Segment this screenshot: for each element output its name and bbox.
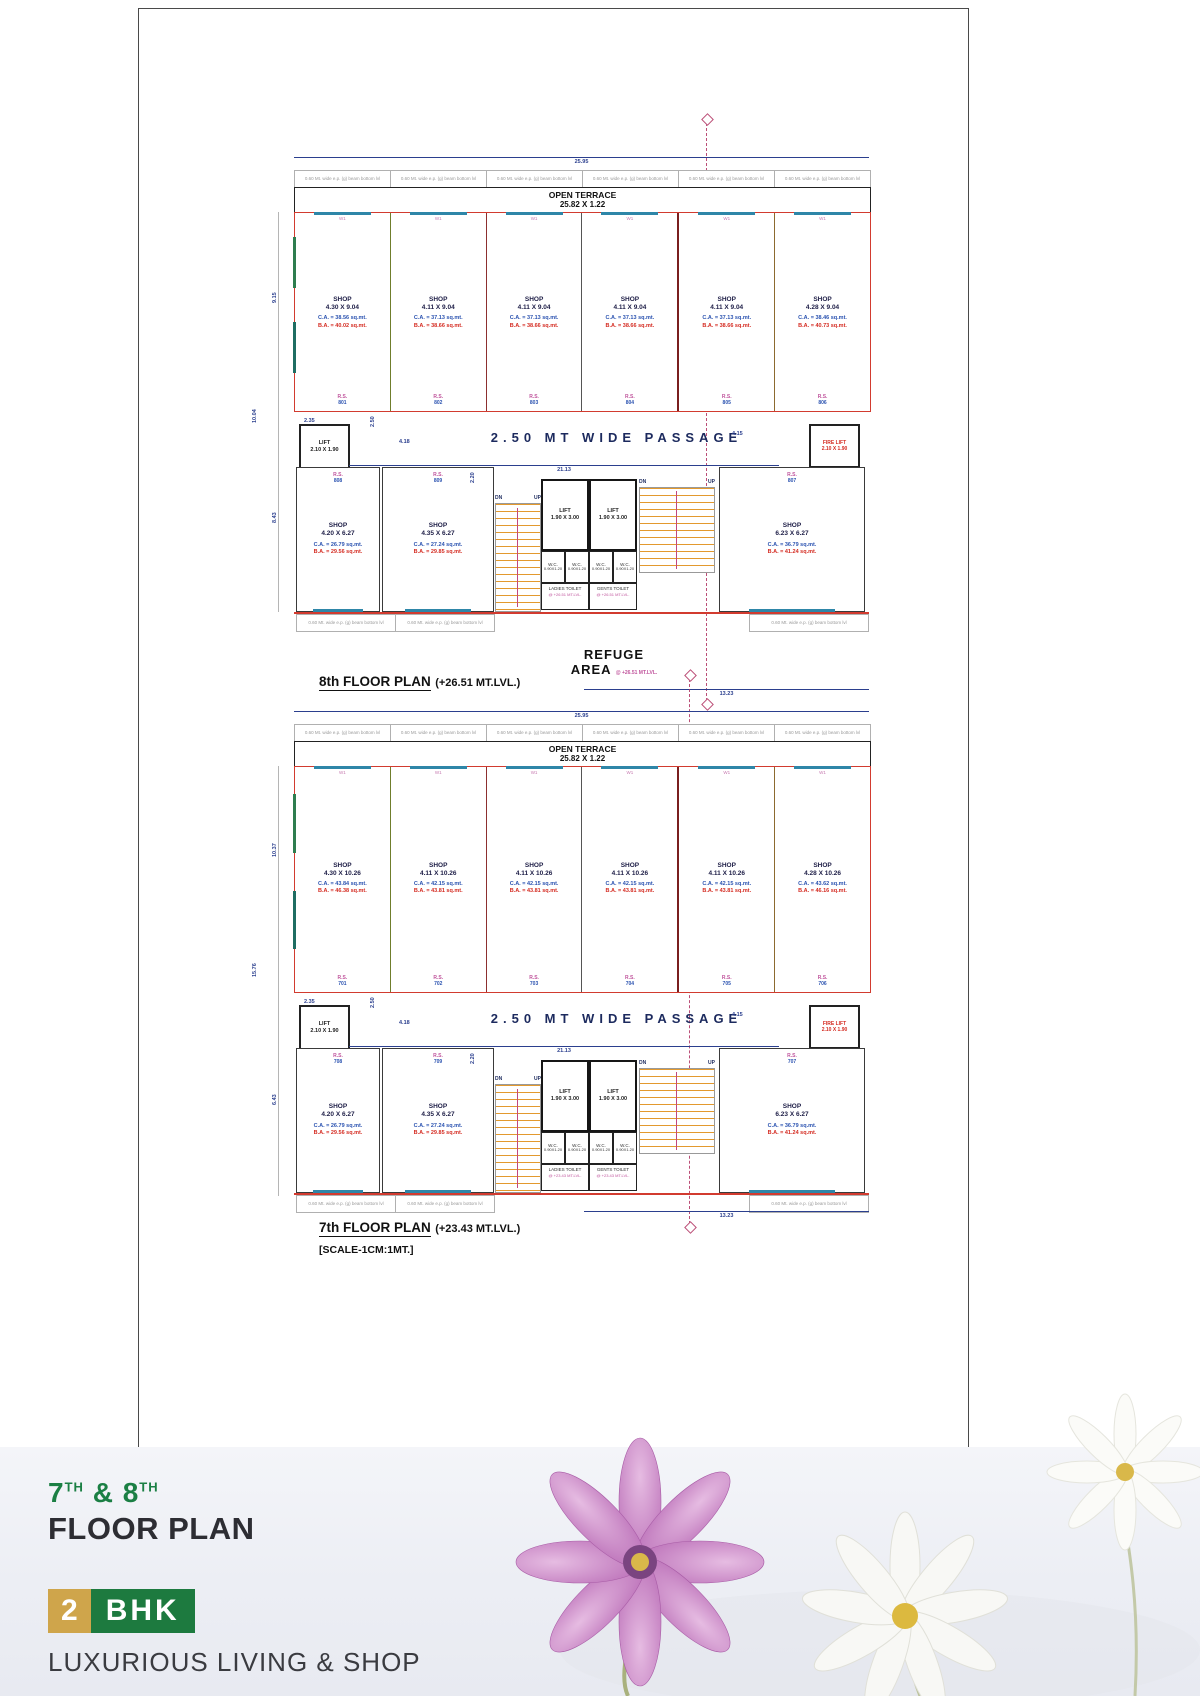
window-strip bbox=[698, 212, 755, 215]
beam-note: 0.60 Mt. wide e.p. (g) beam bottom lvl bbox=[396, 1196, 494, 1212]
shop-unit: W1 SHOP 4.11 X 10.26 C.A. = 42.15 sq.mt.… bbox=[390, 767, 486, 992]
dimension-label: 6.43 bbox=[272, 1094, 278, 1105]
shop-number: R.S. 701 bbox=[295, 975, 390, 987]
passage-label: 2.50 MT WIDE PASSAGE bbox=[491, 430, 742, 445]
drawing-sheet: 25.95 0.60 Mt. wide e.p. (g) beam bottom… bbox=[138, 8, 969, 1449]
lift: LIFT 1.90 X 3.00 bbox=[589, 1060, 637, 1132]
ampersand: & bbox=[93, 1477, 114, 1508]
fire-lift: FIRE LIFT 2.10 X 1.90 bbox=[809, 424, 860, 468]
shop-text: SHOP 4.11 X 10.26 C.A. = 42.15 sq.mt. B.… bbox=[487, 862, 582, 896]
footer-titles: 7TH & 8TH FLOOR PLAN 2 BHK LUXURIOUS LIV… bbox=[48, 1477, 421, 1678]
staircase: DN UP bbox=[639, 487, 715, 573]
builtup-area: B.A. = 29.85 sq.mt. bbox=[383, 549, 493, 556]
carpet-area: C.A. = 36.79 sq.mt. bbox=[720, 1123, 864, 1130]
wc-cell: W.C.0.90X1.20 bbox=[565, 551, 589, 583]
shop-text: SHOP 6.23 X 6.27 C.A. = 36.79 sq.mt. B.A… bbox=[720, 1103, 864, 1137]
window-strip bbox=[698, 766, 755, 769]
bhk-label: BHK bbox=[91, 1589, 195, 1633]
wc-cell: W.C.0.90X1.20 bbox=[613, 1132, 637, 1164]
open-terrace: OPEN TERRACE 25.82 X 1.22 bbox=[294, 741, 871, 768]
shop-text: SHOP 4.20 X 6.27 C.A. = 26.79 sq.mt. B.A… bbox=[297, 522, 379, 556]
wc-cell: W.C.0.90X1.20 bbox=[565, 1132, 589, 1164]
bhk-count: 2 bbox=[48, 1589, 91, 1633]
builtup-area: B.A. = 43.81 sq.mt. bbox=[391, 888, 486, 895]
dimension-label: 9.15 bbox=[272, 292, 278, 303]
shop-label: SHOP bbox=[297, 522, 379, 530]
shop-label: SHOP bbox=[383, 1103, 493, 1111]
shop-text: SHOP 4.11 X 10.26 C.A. = 42.15 sq.mt. B.… bbox=[679, 862, 774, 896]
shop-dimension: 6.23 X 6.27 bbox=[720, 1111, 864, 1119]
terrace-label: OPEN TERRACE bbox=[295, 744, 870, 754]
window-strip bbox=[313, 1190, 362, 1193]
window-strip bbox=[506, 766, 563, 769]
shop-text: SHOP 4.11 X 9.04 C.A. = 37.13 sq.mt. B.A… bbox=[487, 296, 582, 330]
dimension-label: 13.23 bbox=[717, 1213, 737, 1219]
shop-number: R.S. 702 bbox=[391, 975, 486, 987]
carpet-area: C.A. = 42.15 sq.mt. bbox=[487, 881, 582, 888]
dimension-label: 2.35 bbox=[304, 418, 315, 424]
bhk-badge: 2 BHK bbox=[48, 1589, 195, 1633]
shop-label: SHOP bbox=[295, 296, 390, 304]
shop-number: R.S. 705 bbox=[679, 975, 774, 987]
dimension-label: 21.13 bbox=[554, 1048, 574, 1054]
dimension-label: 25.95 bbox=[572, 159, 592, 165]
shop-unit: R.S. 807 SHOP 6.23 X 6.27 C.A. = 36.79 s… bbox=[719, 467, 865, 612]
window-tag: W1 bbox=[775, 770, 870, 775]
window-strip bbox=[749, 1190, 835, 1193]
ladies-toilet: LADIES TOILET @ +23.43 MT.LVL. bbox=[541, 1164, 589, 1191]
passage-band: 2.50 MT WIDE PASSAGE bbox=[294, 993, 869, 1043]
floor-7-suffix: TH bbox=[65, 1480, 84, 1495]
builtup-area: B.A. = 41.24 sq.mt. bbox=[720, 549, 864, 556]
shop-text: SHOP 4.28 X 9.04 C.A. = 38.46 sq.mt. B.A… bbox=[775, 296, 870, 330]
window-tag: W1 bbox=[775, 216, 870, 221]
lift: LIFT 2.10 X 1.90 bbox=[299, 1005, 350, 1051]
wc-dimension: 0.90X1.20 bbox=[614, 567, 636, 572]
toilet-label: LADIES TOILET bbox=[542, 1167, 588, 1173]
shop-number: R.S. 805 bbox=[679, 394, 774, 406]
beam-note: 0.60 Mt. wide e.p. (g) beam bottom lvl bbox=[487, 171, 583, 188]
lift: LIFT 1.90 X 3.00 bbox=[589, 479, 637, 551]
wc-dimension: 0.90X1.20 bbox=[542, 567, 564, 572]
window-strip bbox=[506, 212, 563, 215]
shop-dimension: 4.11 X 9.04 bbox=[582, 304, 677, 312]
brochure-page: 25.95 0.60 Mt. wide e.p. (g) beam bottom… bbox=[0, 0, 1200, 1696]
beam-note: 0.60 Mt. wide e.p. (g) beam bottom lvl bbox=[775, 725, 870, 742]
rs-number: 808 bbox=[297, 478, 379, 484]
shop-number: R.S. 808 bbox=[297, 472, 379, 484]
shop-text: SHOP 4.11 X 9.04 C.A. = 37.13 sq.mt. B.A… bbox=[391, 296, 486, 330]
carpet-area: C.A. = 38.46 sq.mt. bbox=[775, 315, 870, 322]
wc-cell: W.C.0.90X1.20 bbox=[589, 551, 613, 583]
lift-label: LIFT bbox=[543, 1089, 587, 1096]
ladies-toilet: LADIES TOILET @ +26.51 MT.LVL. bbox=[541, 583, 589, 610]
rs-number: 809 bbox=[383, 478, 493, 484]
shop-number: R.S. 801 bbox=[295, 394, 390, 406]
rs-number: 701 bbox=[295, 981, 390, 987]
toilet-level: @ +23.43 MT.LVL. bbox=[542, 1173, 588, 1178]
lift-dimension: 1.90 X 3.00 bbox=[591, 515, 635, 522]
window-tag: W1 bbox=[679, 216, 774, 221]
dimension-label: 4.18 bbox=[399, 1020, 410, 1026]
terrace-dimension: 25.82 X 1.22 bbox=[295, 200, 870, 209]
shop-unit: R.S. 708 SHOP 4.20 X 6.27 C.A. = 26.79 s… bbox=[296, 1048, 380, 1193]
lift-label: LIFT bbox=[301, 1021, 348, 1028]
rs-number: 702 bbox=[391, 981, 486, 987]
shop-number: R.S. 806 bbox=[775, 394, 870, 406]
window-strip bbox=[314, 212, 371, 215]
window-tag: W1 bbox=[582, 770, 677, 775]
carpet-area: C.A. = 26.79 sq.mt. bbox=[297, 1123, 379, 1130]
plan-title: 7th FLOOR PLAN (+23.43 MT.LVL.) bbox=[319, 1219, 520, 1237]
dimension-line: 25.95 bbox=[294, 157, 869, 158]
dimension-label: 10.04 bbox=[252, 409, 258, 423]
beam-note: 0.60 Mt. wide e.p. (g) beam bottom lvl bbox=[583, 725, 679, 742]
carpet-area: C.A. = 42.15 sq.mt. bbox=[391, 881, 486, 888]
shop-text: SHOP 4.20 X 6.27 C.A. = 26.79 sq.mt. B.A… bbox=[297, 1103, 379, 1137]
stair-up-label: UP bbox=[708, 479, 715, 485]
lift: LIFT 1.90 X 3.00 bbox=[541, 479, 589, 551]
builtup-area: B.A. = 40.02 sq.mt. bbox=[295, 323, 390, 330]
shop-label: SHOP bbox=[582, 296, 677, 304]
builtup-area: B.A. = 38.66 sq.mt. bbox=[679, 323, 774, 330]
window-strip bbox=[601, 212, 658, 215]
lift-label: LIFT bbox=[543, 508, 587, 515]
shop-unit: R.S. 709 SHOP 4.35 X 6.27 C.A. = 27.24 s… bbox=[382, 1048, 494, 1193]
core-lifts: LIFT 1.90 X 3.00 LIFT 1.90 X 3.00 bbox=[541, 1060, 637, 1132]
shop-number: R.S. 804 bbox=[582, 394, 677, 406]
wc-row: W.C.0.90X1.20 W.C.0.90X1.20 W.C.0.90X1.2… bbox=[541, 1132, 637, 1164]
wc-dimension: 0.90X1.20 bbox=[542, 1148, 564, 1153]
floor-plan-7th: 25.95 0.60 Mt. wide e.p. (g) beam bottom… bbox=[264, 667, 924, 1287]
staircase: DN UP bbox=[639, 1068, 715, 1154]
dimension-label: 25.95 bbox=[572, 713, 592, 719]
window-tag: W1 bbox=[487, 216, 582, 221]
shop-text: SHOP 4.11 X 10.26 C.A. = 42.15 sq.mt. B.… bbox=[582, 862, 677, 896]
window-strip bbox=[601, 766, 658, 769]
rs-number: 807 bbox=[720, 478, 864, 484]
shop-dimension: 4.20 X 6.27 bbox=[297, 530, 379, 538]
carpet-area: C.A. = 37.13 sq.mt. bbox=[582, 315, 677, 322]
builtup-area: B.A. = 29.56 sq.mt. bbox=[297, 1130, 379, 1137]
shop-unit: R.S. 809 SHOP 4.35 X 6.27 C.A. = 27.24 s… bbox=[382, 467, 494, 612]
rs-number: 703 bbox=[487, 981, 582, 987]
wc-dimension: 0.90X1.20 bbox=[590, 567, 612, 572]
plan-title-level: (+23.43 MT.LVL.) bbox=[435, 1223, 520, 1235]
shop-number: R.S. 708 bbox=[297, 1053, 379, 1065]
shop-text: SHOP 4.11 X 9.04 C.A. = 37.13 sq.mt. B.A… bbox=[582, 296, 677, 330]
shop-unit: W1 SHOP 4.30 X 10.26 C.A. = 43.84 sq.mt.… bbox=[295, 767, 390, 992]
rs-number: 705 bbox=[679, 981, 774, 987]
shop-label: SHOP bbox=[487, 862, 582, 870]
shop-number: R.S. 707 bbox=[720, 1053, 864, 1065]
carpet-area: C.A. = 26.79 sq.mt. bbox=[297, 542, 379, 549]
fire-lift-dimension: 2.10 X 1.90 bbox=[811, 446, 858, 453]
lift-label: LIFT bbox=[591, 508, 635, 515]
dimension-line: 25.95 bbox=[294, 711, 869, 712]
shop-number: R.S. 807 bbox=[720, 472, 864, 484]
stair-up-label: UP bbox=[534, 495, 541, 501]
lower-row: R.S. 708 SHOP 4.20 X 6.27 C.A. = 26.79 s… bbox=[294, 1048, 869, 1195]
lift-dimension: 1.90 X 3.00 bbox=[591, 1096, 635, 1103]
builtup-area: B.A. = 46.38 sq.mt. bbox=[295, 888, 390, 895]
wc-dimension: 0.90X1.20 bbox=[614, 1148, 636, 1153]
shop-unit: W1 SHOP 4.11 X 10.26 C.A. = 42.15 sq.mt.… bbox=[486, 767, 582, 992]
stair-down-label: DN bbox=[495, 1076, 502, 1082]
footer-band: 7TH & 8TH FLOOR PLAN 2 BHK LUXURIOUS LIV… bbox=[0, 1447, 1200, 1696]
dimension-line: 21.13 bbox=[349, 465, 779, 466]
lower-row: R.S. 808 SHOP 4.20 X 6.27 C.A. = 26.79 s… bbox=[294, 467, 869, 614]
shop-unit: W1 SHOP 4.30 X 9.04 C.A. = 38.56 sq.mt. … bbox=[295, 213, 390, 411]
shop-unit: W1 SHOP 4.11 X 9.04 C.A. = 37.13 sq.mt. … bbox=[486, 213, 582, 411]
beam-note: 0.60 Mt. wide e.p. (g) beam bottom lvl bbox=[487, 725, 583, 742]
window-strip bbox=[314, 766, 371, 769]
carpet-area: C.A. = 43.62 sq.mt. bbox=[775, 881, 870, 888]
shop-label: SHOP bbox=[487, 296, 582, 304]
builtup-area: B.A. = 46.16 sq.mt. bbox=[775, 888, 870, 895]
gents-toilet: GENTS TOILET @ +26.51 MT.LVL. bbox=[589, 583, 637, 610]
beam-note: 0.60 Mt. wide e.p. (g) beam bottom lvl bbox=[391, 725, 487, 742]
shop-number: R.S. 703 bbox=[487, 975, 582, 987]
shop-unit: R.S. 808 SHOP 4.20 X 6.27 C.A. = 26.79 s… bbox=[296, 467, 380, 612]
shop-label: SHOP bbox=[720, 522, 864, 530]
carpet-area: C.A. = 27.24 sq.mt. bbox=[383, 1123, 493, 1130]
shop-unit: R.S. 707 SHOP 6.23 X 6.27 C.A. = 36.79 s… bbox=[719, 1048, 865, 1193]
floor-plan-heading: FLOOR PLAN bbox=[48, 1511, 421, 1547]
floors-heading: 7TH & 8TH bbox=[48, 1477, 421, 1509]
dimension-label: 4.18 bbox=[399, 439, 410, 445]
stair-down-label: DN bbox=[639, 479, 646, 485]
stair-down-label: DN bbox=[495, 495, 502, 501]
core-lifts: LIFT 1.90 X 3.00 LIFT 1.90 X 3.00 bbox=[541, 479, 637, 551]
shop-text: SHOP 4.28 X 10.26 C.A. = 43.62 sq.mt. B.… bbox=[775, 862, 870, 896]
shop-label: SHOP bbox=[297, 1103, 379, 1111]
toilet-row: LADIES TOILET @ +23.43 MT.LVL. GENTS TOI… bbox=[541, 1164, 637, 1191]
shop-dimension: 4.11 X 9.04 bbox=[487, 304, 582, 312]
shop-unit: W1 SHOP 4.11 X 10.26 C.A. = 42.15 sq.mt.… bbox=[677, 767, 774, 992]
shop-text: SHOP 6.23 X 6.27 C.A. = 36.79 sq.mt. B.A… bbox=[720, 522, 864, 556]
shop-unit: W1 SHOP 4.11 X 9.04 C.A. = 37.13 sq.mt. … bbox=[581, 213, 677, 411]
shop-dimension: 4.11 X 10.26 bbox=[391, 870, 486, 878]
rs-number: 806 bbox=[775, 400, 870, 406]
staircase: DN UP bbox=[495, 503, 541, 612]
carpet-area: C.A. = 37.13 sq.mt. bbox=[391, 315, 486, 322]
rs-number: 707 bbox=[720, 1059, 864, 1065]
dimension-line: 21.13 bbox=[349, 1046, 779, 1047]
shop-label: SHOP bbox=[679, 862, 774, 870]
shop-dimension: 4.28 X 9.04 bbox=[775, 304, 870, 312]
window-strip bbox=[405, 609, 471, 612]
building-outline bbox=[278, 212, 279, 612]
dimension-label: 21.13 bbox=[554, 467, 574, 473]
shop-unit: W1 SHOP 4.28 X 10.26 C.A. = 43.62 sq.mt.… bbox=[774, 767, 870, 992]
carpet-area: C.A. = 27.24 sq.mt. bbox=[383, 542, 493, 549]
beam-note: 0.60 Mt. wide e.p. (g) beam bottom lvl bbox=[775, 171, 870, 188]
window-strip bbox=[405, 1190, 471, 1193]
wc-cell: W.C.0.90X1.20 bbox=[613, 551, 637, 583]
tagline: LUXURIOUS LIVING & SHOP bbox=[48, 1647, 421, 1678]
builtup-area: B.A. = 29.85 sq.mt. bbox=[383, 1130, 493, 1137]
wc-dimension: 0.90X1.20 bbox=[590, 1148, 612, 1153]
shop-dimension: 4.20 X 6.27 bbox=[297, 1111, 379, 1119]
terrace-dimension: 25.82 X 1.22 bbox=[295, 754, 870, 763]
terrace-label: OPEN TERRACE bbox=[295, 190, 870, 200]
shop-text: SHOP 4.30 X 9.04 C.A. = 38.56 sq.mt. B.A… bbox=[295, 296, 390, 330]
dimension-label: 15.76 bbox=[252, 963, 258, 977]
toilet-level: @ +26.51 MT.LVL. bbox=[542, 592, 588, 597]
gents-toilet: GENTS TOILET @ +23.43 MT.LVL. bbox=[589, 1164, 637, 1191]
floor-plan-8th: 25.95 0.60 Mt. wide e.p. (g) beam bottom… bbox=[264, 113, 924, 713]
beam-note: 0.60 Mt. wide e.p. (g) beam bottom lvl bbox=[297, 615, 396, 631]
stair-up-label: UP bbox=[534, 1076, 541, 1082]
shop-unit: W1 SHOP 4.11 X 9.04 C.A. = 37.13 sq.mt. … bbox=[390, 213, 486, 411]
stair-up-label: UP bbox=[708, 1060, 715, 1066]
wc-dimension: 0.90X1.20 bbox=[566, 567, 588, 572]
shop-number: R.S. 803 bbox=[487, 394, 582, 406]
rs-number: 805 bbox=[679, 400, 774, 406]
rs-number: 706 bbox=[775, 981, 870, 987]
shop-number: R.S. 706 bbox=[775, 975, 870, 987]
carpet-area: C.A. = 42.15 sq.mt. bbox=[679, 881, 774, 888]
wc-cell: W.C.0.90X1.20 bbox=[589, 1132, 613, 1164]
rs-number: 803 bbox=[487, 400, 582, 406]
wc-row: W.C.0.90X1.20 W.C.0.90X1.20 W.C.0.90X1.2… bbox=[541, 551, 637, 583]
beam-note: 0.60 Mt. wide e.p. (g) beam bottom lvl bbox=[679, 725, 775, 742]
builtup-area: B.A. = 38.66 sq.mt. bbox=[487, 323, 582, 330]
scale-note: [SCALE-1CM:1MT.] bbox=[319, 1244, 414, 1256]
beam-strip: 0.60 Mt. wide e.p. (g) beam bottom lvl 0… bbox=[296, 614, 495, 632]
lift-dimension: 2.10 X 1.90 bbox=[301, 447, 348, 454]
shop-dimension: 4.35 X 6.27 bbox=[383, 530, 493, 538]
shop-unit: W1 SHOP 4.11 X 10.26 C.A. = 42.15 sq.mt.… bbox=[581, 767, 677, 992]
builtup-area: B.A. = 41.24 sq.mt. bbox=[720, 1130, 864, 1137]
toilet-label: GENTS TOILET bbox=[590, 1167, 636, 1173]
dimension-line: 13.23 bbox=[584, 1211, 869, 1212]
window-strip bbox=[794, 212, 851, 215]
stair-down-label: DN bbox=[639, 1060, 646, 1066]
beam-note: 0.60 Mt. wide e.p. (g) beam bottom lvl bbox=[295, 171, 391, 188]
lift-dimension: 1.90 X 3.00 bbox=[543, 515, 587, 522]
shop-dimension: 4.30 X 10.26 bbox=[295, 870, 390, 878]
shop-text: SHOP 4.35 X 6.27 C.A. = 27.24 sq.mt. B.A… bbox=[383, 522, 493, 556]
window-tag: W1 bbox=[295, 216, 390, 221]
toilet-label: LADIES TOILET bbox=[542, 586, 588, 592]
shop-dimension: 4.11 X 9.04 bbox=[679, 304, 774, 312]
lift: LIFT 1.90 X 3.00 bbox=[541, 1060, 589, 1132]
window-tag: W1 bbox=[391, 770, 486, 775]
carpet-area: C.A. = 43.84 sq.mt. bbox=[295, 881, 390, 888]
wc-dimension: 0.90X1.20 bbox=[566, 1148, 588, 1153]
toilet-level: @ +26.51 MT.LVL. bbox=[590, 592, 636, 597]
rs-number: 704 bbox=[582, 981, 677, 987]
shop-dimension: 4.28 X 10.26 bbox=[775, 870, 870, 878]
window-strip bbox=[794, 766, 851, 769]
builtup-area: B.A. = 43.81 sq.mt. bbox=[487, 888, 582, 895]
shop-text: SHOP 4.35 X 6.27 C.A. = 27.24 sq.mt. B.A… bbox=[383, 1103, 493, 1137]
window-strip bbox=[313, 609, 362, 612]
dimension-label: 2.50 bbox=[370, 997, 376, 1008]
toilet-level: @ +23.43 MT.LVL. bbox=[590, 1173, 636, 1178]
carpet-area: C.A. = 36.79 sq.mt. bbox=[720, 542, 864, 549]
floor-8: 8 bbox=[123, 1477, 140, 1508]
builtup-area: B.A. = 43.81 sq.mt. bbox=[679, 888, 774, 895]
beam-note: 0.60 Mt. wide e.p. (g) beam bottom lvl bbox=[295, 725, 391, 742]
lift: LIFT 2.10 X 1.90 bbox=[299, 424, 350, 470]
window-tag: W1 bbox=[582, 216, 677, 221]
wc-cell: W.C.0.90X1.20 bbox=[541, 1132, 565, 1164]
builtup-area: B.A. = 43.81 sq.mt. bbox=[582, 888, 677, 895]
beam-note: 0.60 Mt. wide e.p. (g) beam bottom lvl bbox=[750, 615, 868, 631]
refuge-line1: REFUGE bbox=[549, 647, 679, 662]
fire-lift: FIRE LIFT 2.10 X 1.90 bbox=[809, 1005, 860, 1049]
builtup-area: B.A. = 40.73 sq.mt. bbox=[775, 323, 870, 330]
floor-7: 7 bbox=[48, 1477, 65, 1508]
beam-note: 0.60 Mt. wide e.p. (g) beam bottom lvl bbox=[679, 171, 775, 188]
beam-note: 0.60 Mt. wide e.p. (g) beam bottom lvl bbox=[396, 615, 494, 631]
shop-label: SHOP bbox=[775, 862, 870, 870]
shop-label: SHOP bbox=[391, 862, 486, 870]
floor-8-suffix: TH bbox=[139, 1480, 158, 1495]
window-tag: W1 bbox=[391, 216, 486, 221]
shop-text: SHOP 4.11 X 9.04 C.A. = 37.13 sq.mt. B.A… bbox=[679, 296, 774, 330]
passage-label: 2.50 MT WIDE PASSAGE bbox=[491, 1011, 742, 1026]
shop-text: SHOP 4.30 X 10.26 C.A. = 43.84 sq.mt. B.… bbox=[295, 862, 390, 896]
dimension-label: 2.20 bbox=[470, 472, 476, 483]
carpet-area: C.A. = 37.13 sq.mt. bbox=[679, 315, 774, 322]
shop-label: SHOP bbox=[720, 1103, 864, 1111]
shop-dimension: 4.11 X 9.04 bbox=[391, 304, 486, 312]
toilet-row: LADIES TOILET @ +26.51 MT.LVL. GENTS TOI… bbox=[541, 583, 637, 610]
toilet-label: GENTS TOILET bbox=[590, 586, 636, 592]
open-terrace: OPEN TERRACE 25.82 X 1.22 bbox=[294, 187, 871, 214]
shops-row: W1 SHOP 4.30 X 9.04 C.A. = 38.56 sq.mt. … bbox=[294, 212, 871, 412]
dimension-label: 2.20 bbox=[470, 1053, 476, 1064]
rs-number: 802 bbox=[391, 400, 486, 406]
shop-number: R.S. 709 bbox=[383, 1053, 493, 1065]
wc-cell: W.C.0.90X1.20 bbox=[541, 551, 565, 583]
beam-note: 0.60 Mt. wide e.p. (g) beam bottom lvl bbox=[297, 1196, 396, 1212]
window-tag: W1 bbox=[295, 770, 390, 775]
shop-number: R.S. 704 bbox=[582, 975, 677, 987]
building-outline bbox=[278, 766, 279, 1196]
builtup-area: B.A. = 38.66 sq.mt. bbox=[391, 323, 486, 330]
window-strip bbox=[749, 609, 835, 612]
shop-label: SHOP bbox=[582, 862, 677, 870]
beam-note: 0.60 Mt. wide e.p. (g) beam bottom lvl bbox=[583, 171, 679, 188]
window-strip bbox=[410, 766, 467, 769]
lift-core: LIFT 1.90 X 3.00 LIFT 1.90 X 3.00 W.C.0.… bbox=[541, 479, 637, 612]
rs-number: 801 bbox=[295, 400, 390, 406]
window-strip bbox=[410, 212, 467, 215]
shop-dimension: 4.30 X 9.04 bbox=[295, 304, 390, 312]
dimension-label: 4.15 bbox=[732, 1012, 743, 1018]
shop-number: R.S. 809 bbox=[383, 472, 493, 484]
shop-label: SHOP bbox=[383, 522, 493, 530]
shop-unit: W1 SHOP 4.11 X 9.04 C.A. = 37.13 sq.mt. … bbox=[677, 213, 774, 411]
lift-dimension: 1.90 X 3.00 bbox=[543, 1096, 587, 1103]
shop-dimension: 4.11 X 10.26 bbox=[679, 870, 774, 878]
beam-strip: 0.60 Mt. wide e.p. (g) beam bottom lvl bbox=[749, 614, 869, 632]
rs-number: 804 bbox=[582, 400, 677, 406]
dimension-label: 10.37 bbox=[272, 843, 278, 857]
passage-band: 2.50 MT WIDE PASSAGE bbox=[294, 412, 869, 462]
lift-core: LIFT 1.90 X 3.00 LIFT 1.90 X 3.00 W.C.0.… bbox=[541, 1060, 637, 1193]
dimension-label: 4.15 bbox=[732, 431, 743, 437]
lift-dimension: 2.10 X 1.90 bbox=[301, 1028, 348, 1035]
rs-number: 709 bbox=[383, 1059, 493, 1065]
shop-dimension: 4.35 X 6.27 bbox=[383, 1111, 493, 1119]
shop-dimension: 4.11 X 10.26 bbox=[487, 870, 582, 878]
